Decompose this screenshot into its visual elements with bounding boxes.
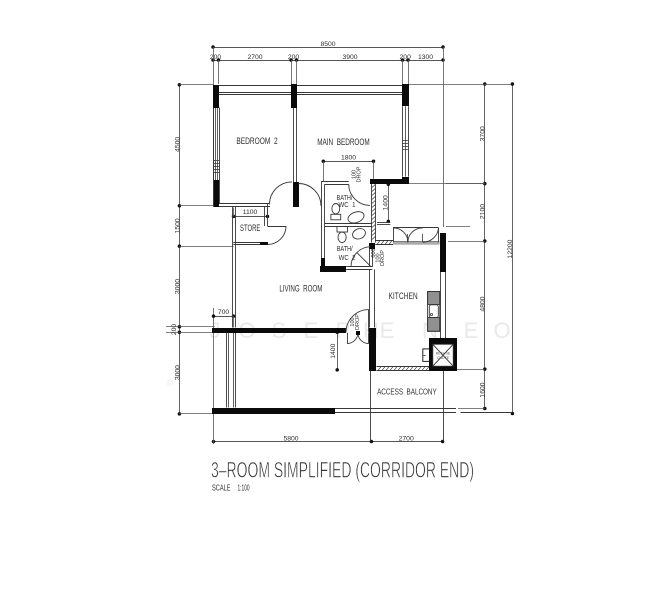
svg-text:2700: 2700 xyxy=(247,54,262,61)
svg-text:ACCESS BALCONY: ACCESS BALCONY xyxy=(377,387,437,397)
svg-text:200: 200 xyxy=(210,54,222,61)
svg-text:DROP: DROP xyxy=(355,314,361,330)
svg-text:1400: 1400 xyxy=(382,195,389,210)
svg-text:1400: 1400 xyxy=(330,343,337,358)
svg-text:KITCHEN: KITCHEN xyxy=(389,291,418,301)
svg-text:200: 200 xyxy=(171,324,178,336)
svg-text:3900: 3900 xyxy=(342,54,357,61)
svg-text:BATH/: BATH/ xyxy=(337,244,354,253)
svg-text:3000: 3000 xyxy=(174,279,181,294)
svg-text:E: E xyxy=(464,318,479,343)
svg-text:BEDROOM 2: BEDROOM 2 xyxy=(236,136,277,146)
svg-text:700: 700 xyxy=(218,309,230,316)
svg-text:1800: 1800 xyxy=(341,154,356,161)
svg-text:1100: 1100 xyxy=(243,209,258,216)
svg-text:2700: 2700 xyxy=(399,435,414,442)
svg-text:8500: 8500 xyxy=(320,41,335,48)
svg-text:DROP: DROP xyxy=(357,166,363,182)
svg-text:WC 1: WC 1 xyxy=(339,200,356,209)
svg-text:LIVING ROOM: LIVING ROOM xyxy=(279,284,322,294)
svg-text:1:100: 1:100 xyxy=(238,482,250,492)
svg-text:3700: 3700 xyxy=(479,126,486,141)
svg-text:1300: 1300 xyxy=(418,54,433,61)
svg-text:©: © xyxy=(167,378,174,388)
svg-text:1600: 1600 xyxy=(479,382,486,397)
svg-text:MAIN BEDROOM: MAIN BEDROOM xyxy=(317,137,370,147)
svg-text:STORE: STORE xyxy=(240,223,260,233)
svg-text:3–ROOM SIMPLIFIED (CORRIDOR EN: 3–ROOM SIMPLIFIED (CORRIDOR END) xyxy=(211,458,474,483)
svg-text:SCALE: SCALE xyxy=(212,482,231,492)
svg-text:1500: 1500 xyxy=(174,218,181,233)
svg-text:O: O xyxy=(493,318,510,343)
svg-text:200: 200 xyxy=(288,54,300,61)
svg-text:12200: 12200 xyxy=(507,239,514,258)
svg-text:3000: 3000 xyxy=(174,365,181,380)
svg-text:200: 200 xyxy=(400,54,412,61)
svg-text:5800: 5800 xyxy=(283,435,298,442)
svg-text:E: E xyxy=(380,318,395,343)
svg-text:4500: 4500 xyxy=(174,137,181,152)
svg-text:WC 2: WC 2 xyxy=(339,253,356,262)
svg-text:DROP: DROP xyxy=(380,250,386,266)
svg-text:4800: 4800 xyxy=(479,296,486,311)
svg-text:2100: 2100 xyxy=(479,204,486,219)
svg-text:CHUTE: CHUTE xyxy=(437,356,450,360)
